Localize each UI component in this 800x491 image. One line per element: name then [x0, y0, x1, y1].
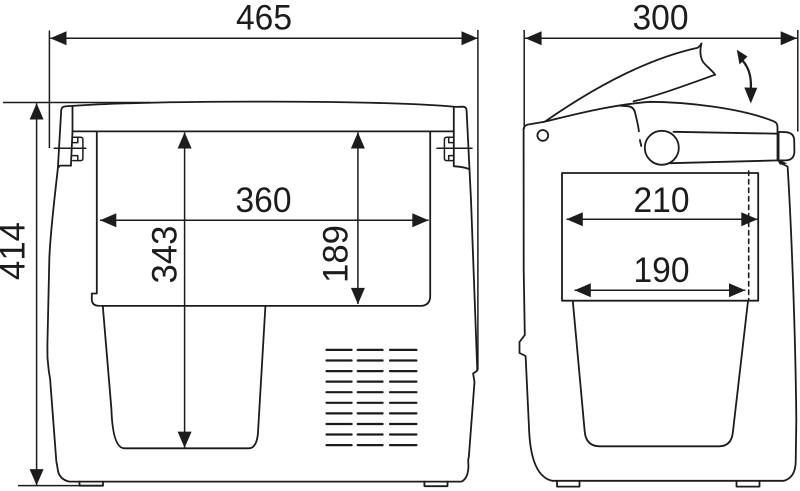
svg-text:189: 189 [316, 225, 355, 283]
svg-text:465: 465 [236, 0, 292, 38]
svg-text:360: 360 [236, 181, 292, 220]
svg-text:414: 414 [0, 222, 33, 280]
svg-text:343: 343 [146, 226, 185, 284]
svg-text:210: 210 [634, 181, 690, 220]
svg-text:190: 190 [634, 251, 690, 290]
svg-text:300: 300 [633, 0, 689, 38]
